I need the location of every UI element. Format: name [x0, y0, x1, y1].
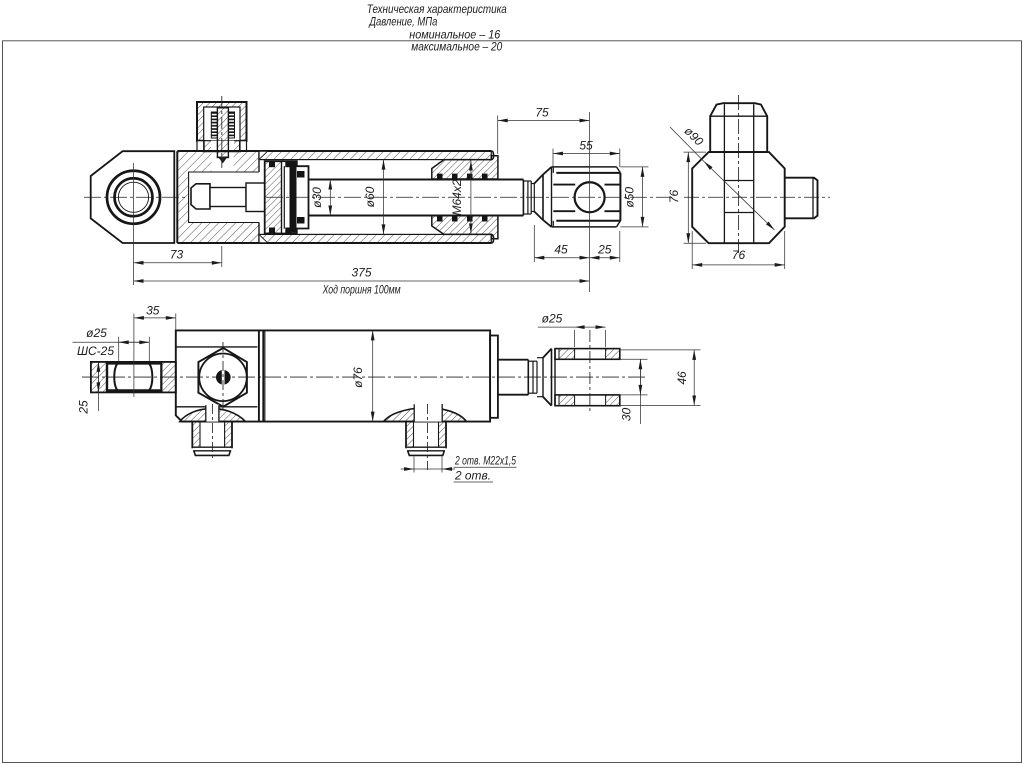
svg-text:76: 76 — [732, 248, 746, 262]
svg-text:75: 75 — [535, 106, 549, 120]
svg-text:Давление, МПа: Давление, МПа — [368, 17, 438, 29]
svg-text:Техническая характеристика: Техническая характеристика — [367, 4, 507, 16]
svg-text:2 отв.: 2 отв. — [454, 469, 491, 483]
svg-text:ø90: ø90 — [682, 124, 707, 149]
svg-text:55: 55 — [579, 139, 593, 153]
svg-text:76: 76 — [667, 190, 681, 204]
svg-text:2 отв. М22х1,5: 2 отв. М22х1,5 — [454, 454, 516, 468]
svg-text:ø30: ø30 — [310, 187, 324, 208]
svg-text:ø76: ø76 — [351, 367, 365, 388]
svg-text:ø60: ø60 — [363, 186, 377, 207]
svg-text:30: 30 — [620, 408, 634, 422]
svg-text:25: 25 — [597, 243, 612, 257]
svg-text:73: 73 — [170, 248, 184, 262]
svg-text:ø25: ø25 — [86, 326, 107, 340]
svg-text:ø50: ø50 — [623, 187, 637, 208]
svg-text:25: 25 — [77, 400, 91, 415]
svg-text:45: 45 — [554, 243, 568, 257]
svg-text:ШС-25: ШС-25 — [77, 344, 114, 358]
svg-text:Ход поршня 100мм: Ход поршня 100мм — [322, 283, 401, 297]
svg-text:максимальное – 20: максимальное – 20 — [411, 42, 503, 54]
svg-text:46: 46 — [675, 371, 689, 385]
svg-text:ø25: ø25 — [542, 312, 563, 326]
svg-text:M64х2: M64х2 — [450, 179, 464, 215]
svg-text:номинальное – 16: номинальное – 16 — [409, 30, 501, 42]
svg-text:375: 375 — [351, 266, 371, 280]
svg-text:35: 35 — [146, 304, 160, 318]
